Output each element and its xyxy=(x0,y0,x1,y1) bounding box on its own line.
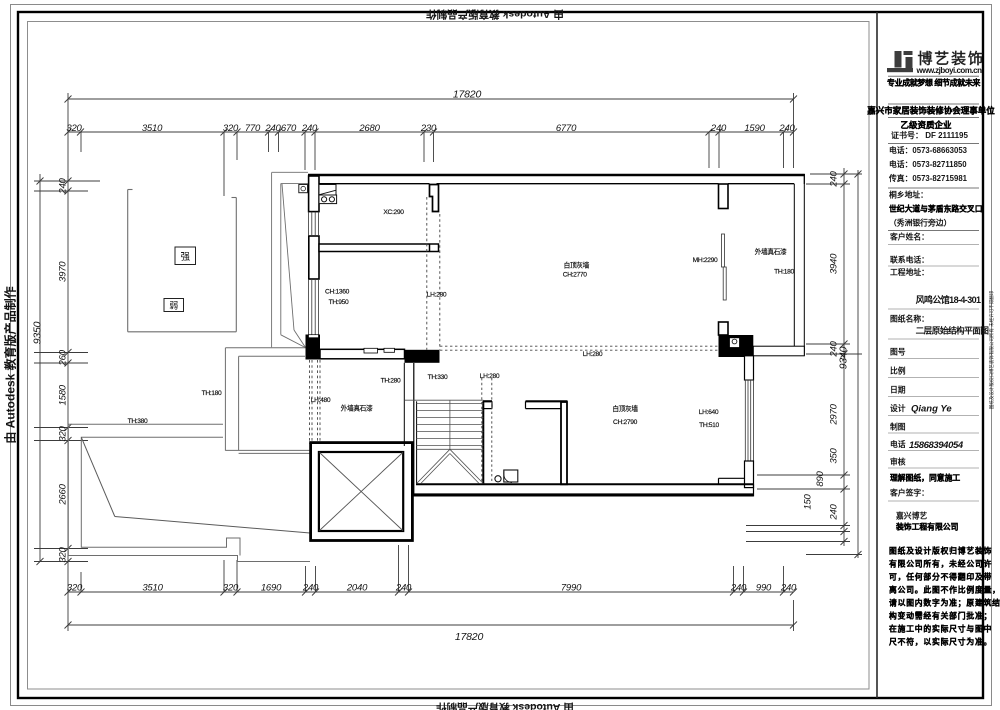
svg-text:有限公司所有，未经公司许: 有限公司所有，未经公司许 xyxy=(889,559,992,569)
svg-text:240: 240 xyxy=(710,123,727,134)
svg-text:3510: 3510 xyxy=(142,123,163,134)
svg-text:320: 320 xyxy=(223,123,239,134)
svg-text:240: 240 xyxy=(395,583,412,594)
svg-text:LH:280: LH:280 xyxy=(583,351,603,358)
svg-text:240: 240 xyxy=(829,340,840,357)
svg-text:图纸及设计版权归博艺装饰: 图纸及设计版权归博艺装饰 xyxy=(889,546,992,556)
svg-text:世纪大道与茅盾东路交叉口: 世纪大道与茅盾东路交叉口 xyxy=(889,204,983,214)
svg-text:图纸名称：: 图纸名称： xyxy=(890,314,929,324)
svg-text:150: 150 xyxy=(803,493,814,509)
svg-text:MH:2290: MH:2290 xyxy=(693,257,718,264)
svg-text:电话：0573-68663053: 电话：0573-68663053 xyxy=(889,145,968,155)
svg-text:LH:640: LH:640 xyxy=(699,409,719,416)
svg-text:XC:290: XC:290 xyxy=(383,209,404,216)
svg-text:1580: 1580 xyxy=(58,384,69,405)
svg-text:由 Autodesk 教育版产品制作: 由 Autodesk 教育版产品制作 xyxy=(426,8,564,21)
svg-text:嘉兴市家居装饰装修协会理事单位: 嘉兴市家居装饰装修协会理事单位 xyxy=(866,106,995,116)
svg-text:9350: 9350 xyxy=(32,321,44,344)
svg-text:理解图纸，同意施工: 理解图纸，同意施工 xyxy=(890,473,960,483)
svg-text:设计: 设计 xyxy=(890,403,906,413)
svg-text:嘉兴博艺: 嘉兴博艺 xyxy=(895,511,927,521)
svg-text:比例: 比例 xyxy=(890,366,906,376)
svg-text:传真：0573-82715981: 传真：0573-82715981 xyxy=(888,173,968,183)
svg-text:1690: 1690 xyxy=(261,583,282,594)
svg-text:（秀洲银行旁边）: （秀洲银行旁边） xyxy=(889,218,951,228)
svg-text:电话：0573-82711850: 电话：0573-82711850 xyxy=(889,159,967,169)
svg-text:240: 240 xyxy=(301,123,318,134)
svg-text:17820: 17820 xyxy=(455,631,484,643)
svg-text:乙级资质企业: 乙级资质企业 xyxy=(900,120,952,130)
svg-text:320: 320 xyxy=(58,546,69,562)
svg-text:230: 230 xyxy=(420,123,437,134)
svg-text:证书号： DF 2111195: 证书号： DF 2111195 xyxy=(891,130,968,140)
svg-text:240: 240 xyxy=(829,170,840,187)
svg-text:www.zjboyi.com.cn: www.zjboyi.com.cn xyxy=(916,66,983,75)
svg-text:离公司。此图不作比例度量，: 离公司。此图不作比例度量， xyxy=(889,585,1000,595)
svg-text:1590: 1590 xyxy=(744,123,765,134)
svg-text:3940: 3940 xyxy=(829,253,840,274)
svg-text:客户姓名：: 客户姓名： xyxy=(890,232,929,242)
svg-text:Qiang Ye: Qiang Ye xyxy=(911,404,952,415)
svg-text:990: 990 xyxy=(756,583,772,594)
svg-text:3510: 3510 xyxy=(142,583,163,594)
svg-text:240: 240 xyxy=(778,123,795,134)
svg-text:2660: 2660 xyxy=(58,483,69,505)
svg-text:风鸣公馆18-4-301: 风鸣公馆18-4-301 xyxy=(916,294,981,305)
svg-text:240: 240 xyxy=(829,503,840,520)
svg-text:二层原始结构平面图: 二层原始结构平面图 xyxy=(916,325,990,336)
svg-text:制图: 制图 xyxy=(890,422,906,432)
svg-text:请以图内数字为准；原建筑结: 请以图内数字为准；原建筑结 xyxy=(889,598,1000,609)
svg-text:CH:2790: CH:2790 xyxy=(613,419,638,426)
svg-text:260: 260 xyxy=(58,349,69,366)
svg-text:CH:1360: CH:1360 xyxy=(325,288,350,295)
svg-text:LH:280: LH:280 xyxy=(427,291,447,298)
svg-text:可，任何部分不得翻印及带: 可，任何部分不得翻印及带 xyxy=(889,572,992,582)
svg-text:2040: 2040 xyxy=(346,583,368,594)
svg-text:弱: 弱 xyxy=(169,301,178,311)
svg-text:LH:280: LH:280 xyxy=(480,373,500,380)
svg-text:LH:480: LH:480 xyxy=(311,397,331,404)
svg-text:TH:510: TH:510 xyxy=(699,422,719,429)
svg-text:尺不符，以实际尺寸为准。: 尺不符，以实际尺寸为准。 xyxy=(889,637,992,647)
svg-text:专业成就梦想 细节成就未来: 专业成就梦想 细节成就未来 xyxy=(887,78,981,88)
svg-text:外墙真石漆: 外墙真石漆 xyxy=(755,247,787,256)
svg-text:图纸及设计版权归博艺装饰有限公司所有 未经许可不得翻印: 图纸及设计版权归博艺装饰有限公司所有 未经许可不得翻印 xyxy=(988,290,995,409)
svg-text:320: 320 xyxy=(66,123,82,134)
svg-text:审核: 审核 xyxy=(890,457,906,467)
svg-text:770: 770 xyxy=(245,123,261,134)
svg-text:联系电话：: 联系电话： xyxy=(890,255,929,265)
svg-text:电话: 电话 xyxy=(890,439,906,449)
svg-text:TH:380: TH:380 xyxy=(128,418,148,425)
svg-text:15868394054: 15868394054 xyxy=(909,440,964,451)
svg-text:TH:180: TH:180 xyxy=(774,269,794,276)
svg-text:320: 320 xyxy=(58,425,69,441)
svg-text:由 Autodesk 教育版产品制作: 由 Autodesk 教育版产品制作 xyxy=(436,701,574,710)
svg-text:350: 350 xyxy=(829,447,840,463)
svg-text:CH:2770: CH:2770 xyxy=(563,272,588,279)
svg-text:由 Autodesk 教育版产品制作: 由 Autodesk 教育版产品制作 xyxy=(3,286,18,443)
svg-text:TH:180: TH:180 xyxy=(202,390,222,397)
svg-text:外墙真石漆: 外墙真石漆 xyxy=(341,404,373,413)
svg-text:17820: 17820 xyxy=(453,89,482,101)
svg-text:320: 320 xyxy=(223,583,239,594)
svg-text:240: 240 xyxy=(264,123,281,134)
svg-text:890: 890 xyxy=(815,470,826,486)
svg-text:TH:330: TH:330 xyxy=(428,374,448,381)
svg-text:日期: 日期 xyxy=(890,385,906,395)
svg-text:240: 240 xyxy=(302,583,319,594)
svg-text:240: 240 xyxy=(58,177,69,194)
svg-text:2680: 2680 xyxy=(358,123,380,134)
svg-text:TH:950: TH:950 xyxy=(329,299,349,306)
svg-text:240: 240 xyxy=(780,583,797,594)
svg-text:博艺装饰: 博艺装饰 xyxy=(918,51,985,68)
svg-text:桐乡地址：: 桐乡地址： xyxy=(889,190,928,200)
svg-text:670: 670 xyxy=(281,123,297,134)
svg-text:构变动需经有关部门批准；: 构变动需经有关部门批准； xyxy=(889,611,992,622)
svg-text:装饰工程有限公司: 装饰工程有限公司 xyxy=(895,522,959,532)
svg-text:TH:280: TH:280 xyxy=(381,378,401,385)
svg-text:白顶灰墙: 白顶灰墙 xyxy=(564,261,590,270)
svg-text:白顶灰墙: 白顶灰墙 xyxy=(612,404,638,413)
svg-text:图号: 图号 xyxy=(890,348,906,357)
svg-text:在施工中的实际尺寸与图中: 在施工中的实际尺寸与图中 xyxy=(889,624,992,634)
svg-text:6770: 6770 xyxy=(556,123,577,134)
svg-text:2970: 2970 xyxy=(829,403,840,425)
svg-text:强: 强 xyxy=(180,252,190,263)
svg-text:240: 240 xyxy=(730,583,747,594)
svg-text:工程地址：: 工程地址： xyxy=(890,267,929,277)
svg-text:7990: 7990 xyxy=(561,583,582,594)
svg-text:320: 320 xyxy=(67,583,83,594)
svg-text:客户签字：: 客户签字： xyxy=(890,488,929,498)
svg-text:3970: 3970 xyxy=(58,261,69,282)
